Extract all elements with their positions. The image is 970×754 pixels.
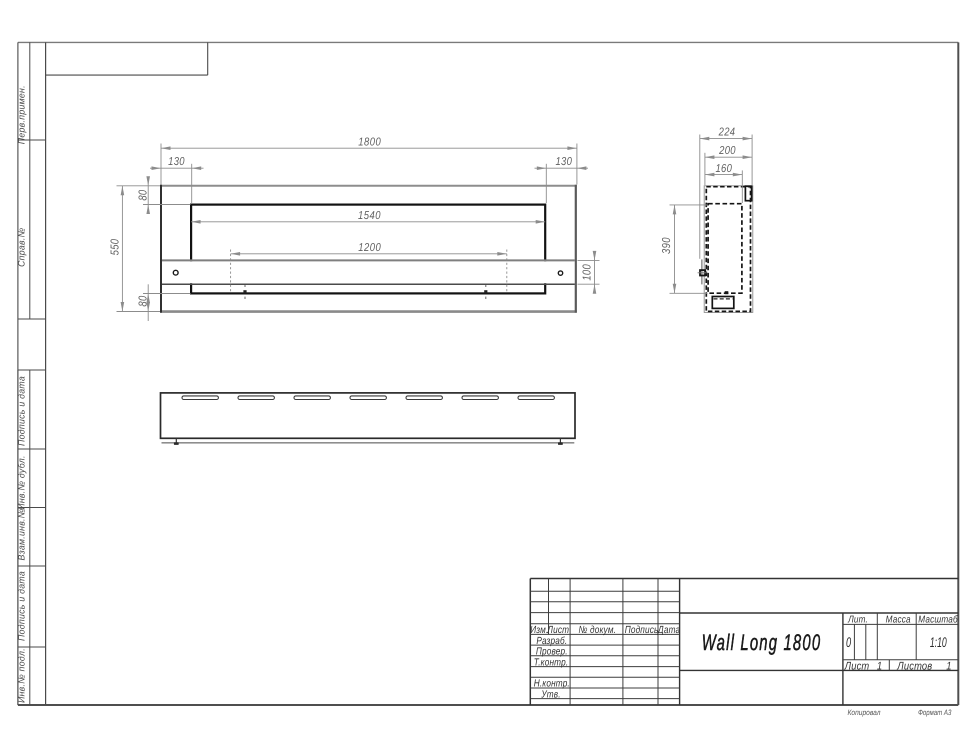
- svg-text:Инв.№ дубл.: Инв.№ дубл.: [17, 455, 27, 509]
- svg-text:Т.контр.: Т.контр.: [534, 657, 569, 668]
- svg-text:Листов: Листов: [896, 660, 932, 672]
- svg-text:Изм.: Изм.: [530, 625, 548, 636]
- svg-text:1800: 1800: [358, 136, 381, 148]
- svg-text:Копировал: Копировал: [848, 708, 881, 717]
- svg-text:Лит.: Лит.: [847, 614, 868, 625]
- svg-text:130: 130: [555, 156, 572, 168]
- svg-text:1540: 1540: [358, 210, 381, 222]
- svg-text:1:10: 1:10: [930, 634, 947, 650]
- svg-text:80: 80: [137, 295, 149, 306]
- svg-text:1200: 1200: [358, 242, 381, 254]
- svg-text:0: 0: [846, 634, 851, 650]
- svg-text:Провер.: Провер.: [536, 647, 568, 658]
- svg-text:1: 1: [877, 660, 882, 672]
- svg-text:100: 100: [581, 264, 593, 281]
- svg-text:Инв.№ подл.: Инв.№ подл.: [17, 648, 27, 703]
- svg-text:Справ.№: Справ.№: [17, 228, 27, 267]
- svg-text:550: 550: [110, 238, 122, 255]
- svg-text:Подпись и дата: Подпись и дата: [17, 571, 27, 641]
- svg-text:Перв.примен.: Перв.примен.: [17, 85, 27, 144]
- svg-text:Подпись и дата: Подпись и дата: [17, 376, 27, 446]
- svg-text:Масштаб: Масштаб: [918, 614, 958, 625]
- svg-text:160: 160: [715, 163, 732, 175]
- svg-text:200: 200: [718, 145, 736, 157]
- svg-text:130: 130: [168, 156, 185, 168]
- svg-text:Подпись: Подпись: [625, 625, 659, 636]
- svg-text:Утв.: Утв.: [541, 689, 561, 700]
- svg-text:Разраб.: Разраб.: [536, 636, 567, 647]
- svg-text:Взам.инв.№: Взам.инв.№: [17, 509, 27, 561]
- svg-text:№ докум.: № докум.: [579, 625, 617, 636]
- svg-text:Масса: Масса: [886, 614, 911, 625]
- svg-text:Н.контр.: Н.контр.: [534, 679, 570, 690]
- svg-text:Wall Long 1800: Wall Long 1800: [702, 630, 822, 655]
- svg-text:Дата: Дата: [657, 625, 680, 636]
- svg-text:Лист: Лист: [844, 660, 870, 672]
- svg-text:390: 390: [661, 237, 673, 254]
- svg-text:Лист: Лист: [546, 625, 569, 636]
- svg-text:224: 224: [718, 126, 736, 138]
- svg-text:1: 1: [946, 660, 951, 672]
- svg-text:Формат А3: Формат А3: [918, 708, 952, 717]
- svg-text:80: 80: [137, 189, 149, 200]
